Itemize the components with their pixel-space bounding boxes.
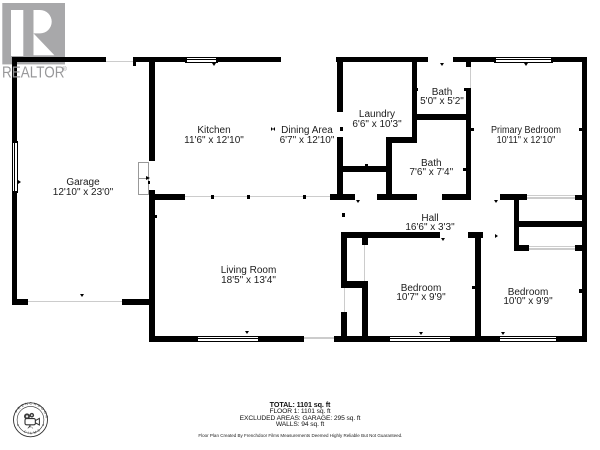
svg-text:REALTOR: REALTOR — [2, 65, 65, 82]
svg-text:®: ® — [62, 65, 67, 73]
